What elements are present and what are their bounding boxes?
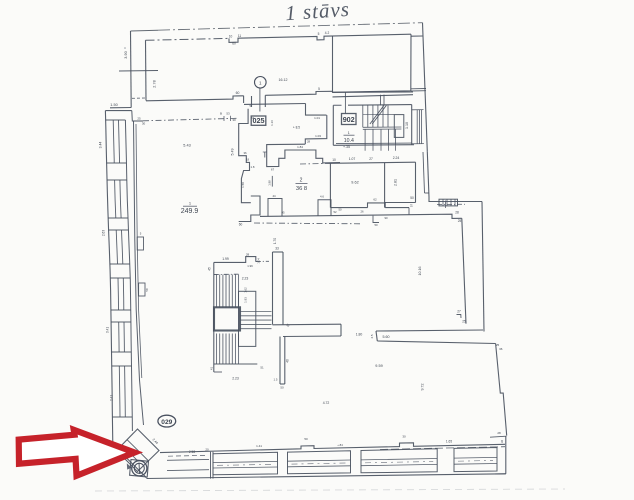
svg-text:50: 50 [304,437,308,441]
svg-text:67: 67 [271,168,275,172]
svg-text:45: 45 [207,267,211,271]
svg-text:27: 27 [457,310,461,314]
svg-text:2.63: 2.63 [102,230,106,236]
svg-text:2.23: 2.23 [242,277,249,281]
svg-text:3.41: 3.41 [106,327,110,333]
svg-text:53: 53 [226,111,230,115]
svg-text:5.43: 5.43 [183,144,190,148]
svg-text:60: 60 [239,223,243,227]
svg-text:40: 40 [286,359,290,363]
svg-text:36: 36 [243,151,247,155]
svg-text:41: 41 [209,367,213,371]
svg-text:+.35: +.35 [343,145,350,149]
svg-text:2.23: 2.23 [232,377,239,381]
svg-text:1.10: 1.10 [405,122,409,129]
svg-text:+.84: +.84 [337,443,343,447]
svg-text:+ 8.5: + 8.5 [293,126,300,130]
svg-text:10.4: 10.4 [344,138,354,144]
svg-text:25: 25 [458,219,462,223]
svg-text:58: 58 [145,288,149,292]
svg-text:36: 36 [500,440,504,444]
svg-text:10: 10 [332,158,336,162]
svg-text:1.41: 1.41 [256,444,262,448]
svg-text:51: 51 [260,366,264,370]
svg-text:62: 62 [373,198,377,202]
svg-text:36: 36 [499,347,503,351]
svg-text:36 8: 36 8 [296,186,307,192]
svg-text:1.65: 1.65 [446,440,452,444]
svg-text:50: 50 [410,196,414,200]
svg-text:1.01: 1.01 [314,116,320,120]
svg-text:5.49: 5.49 [231,149,235,156]
svg-text:25: 25 [462,320,466,324]
svg-text:16.12: 16.12 [279,78,288,82]
svg-text:B: B [220,112,222,116]
svg-text:11: 11 [238,34,242,38]
svg-text:1.62: 1.62 [244,287,248,293]
svg-text:4.5: 4.5 [370,334,374,339]
svg-text:5.60: 5.60 [383,335,390,339]
svg-text:52: 52 [333,210,337,214]
svg-text:1.83: 1.83 [244,297,248,303]
svg-text:10.16: 10.16 [418,267,422,276]
svg-text:50: 50 [280,386,284,390]
svg-text:30: 30 [232,118,236,122]
svg-text:1.84: 1.84 [297,145,303,149]
svg-text:50: 50 [338,208,342,212]
svg-text:2: 2 [300,178,303,184]
svg-text:249.9: 249.9 [181,208,199,215]
svg-text:20: 20 [205,448,209,452]
svg-text:1.03: 1.03 [315,134,321,138]
svg-text:45: 45 [281,211,285,215]
svg-text:1.50: 1.50 [110,103,117,107]
svg-text:27: 27 [369,157,373,161]
svg-text:1.99: 1.99 [222,257,229,261]
svg-text:2 58: 2 58 [189,450,195,454]
svg-text:1.8: 1.8 [251,165,255,169]
svg-text:4.6: 4.6 [320,195,324,199]
svg-text:25: 25 [137,117,141,121]
svg-text:5: 5 [318,87,320,91]
svg-text:18: 18 [246,158,250,162]
svg-text:4.72: 4.72 [323,401,330,405]
svg-text:1.88: 1.88 [268,180,272,186]
svg-text:2.41: 2.41 [110,395,114,401]
svg-text:9.62: 9.62 [351,181,358,185]
svg-text:1.58: 1.58 [241,182,245,188]
svg-text:1.80: 1.80 [356,333,363,337]
svg-text:1.99: 1.99 [247,264,253,268]
svg-text:025: 025 [253,116,265,125]
svg-text:4.2: 4.2 [325,31,330,35]
svg-text:44: 44 [272,194,276,198]
svg-text:1.07: 1.07 [349,157,356,161]
svg-text:9.72: 9.72 [421,384,425,391]
svg-text:60: 60 [236,91,240,95]
svg-text:3.90: 3.90 [124,51,128,58]
svg-text:9.59: 9.59 [375,364,382,368]
svg-text:3.44: 3.44 [99,142,103,149]
svg-text:1.16: 1.16 [270,120,274,126]
svg-text:57: 57 [410,204,414,208]
svg-text:902: 902 [343,115,355,124]
svg-text:1.70: 1.70 [273,238,277,244]
svg-text:28: 28 [455,211,459,215]
svg-text:33: 33 [275,247,279,251]
svg-text:5: 5 [318,32,320,36]
svg-text:2.24: 2.24 [393,156,400,160]
svg-text:1: 1 [348,131,350,135]
svg-text:029: 029 [161,419,172,426]
svg-text:60: 60 [232,42,236,46]
svg-text:30: 30 [402,435,406,439]
svg-text:28: 28 [246,253,250,257]
svg-text:90: 90 [384,216,388,220]
svg-text:1.5: 1.5 [274,378,278,382]
svg-text:26: 26 [360,210,364,214]
svg-text:28: 28 [497,431,501,435]
svg-text:1.04: 1.04 [257,258,261,264]
svg-text:2.81: 2.81 [394,179,398,186]
svg-text:50: 50 [374,223,378,227]
svg-text:28: 28 [307,140,311,144]
svg-text:10: 10 [229,35,233,39]
svg-text:2.78: 2.78 [153,80,157,87]
svg-text:30: 30 [142,122,146,126]
